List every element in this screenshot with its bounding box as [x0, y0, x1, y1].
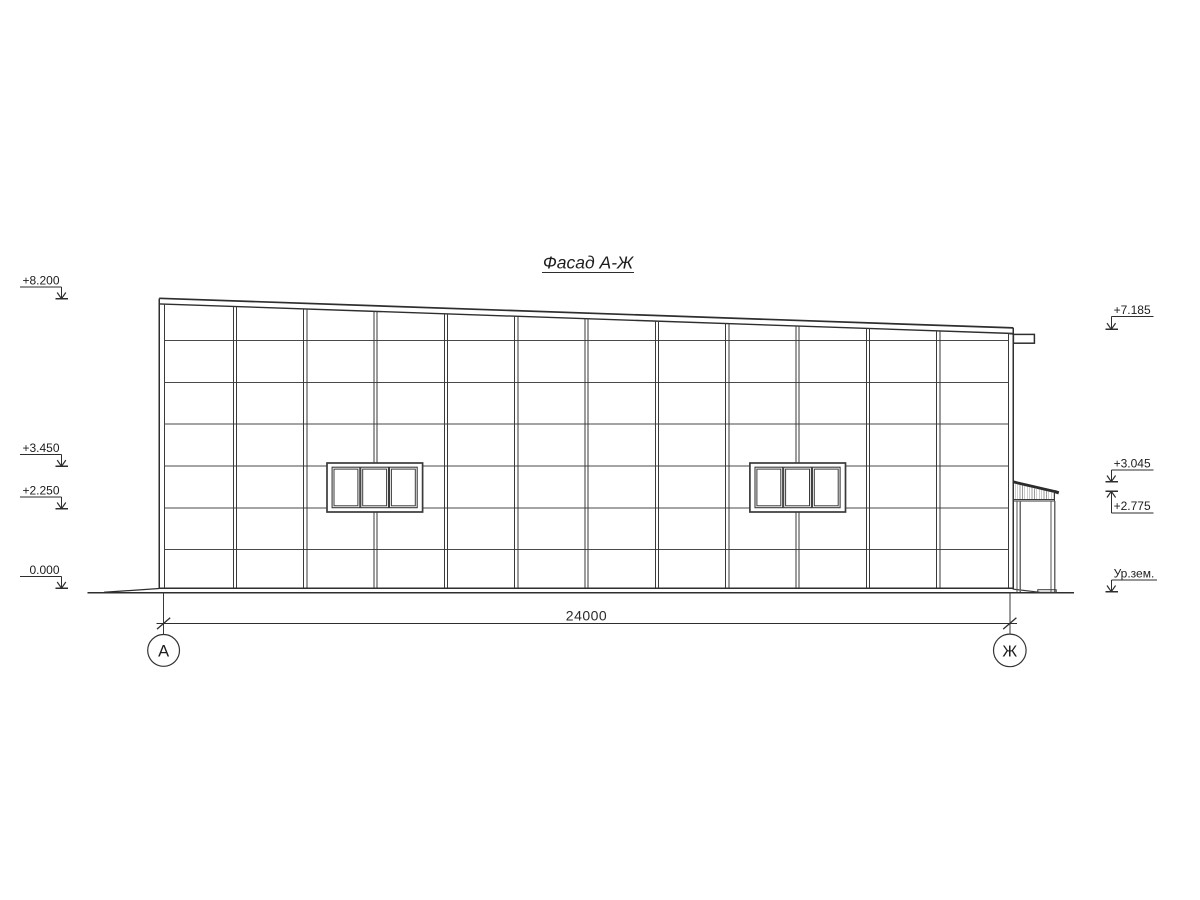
svg-text:+8.200: +8.200: [22, 273, 59, 287]
svg-text:А: А: [158, 642, 169, 660]
svg-text:Ур.зем.: Ур.зем.: [1114, 566, 1155, 580]
svg-text:+2.775: +2.775: [1114, 499, 1151, 513]
svg-text:24000: 24000: [566, 608, 607, 624]
svg-text:+3.450: +3.450: [22, 441, 59, 455]
svg-text:0.000: 0.000: [29, 563, 59, 577]
svg-text:Ж: Ж: [1002, 643, 1017, 660]
svg-text:+2.250: +2.250: [22, 483, 59, 497]
svg-text:Фасад А-Ж: Фасад А-Ж: [543, 253, 634, 273]
svg-text:+3.045: +3.045: [1114, 456, 1151, 470]
svg-text:+7.185: +7.185: [1114, 303, 1151, 317]
